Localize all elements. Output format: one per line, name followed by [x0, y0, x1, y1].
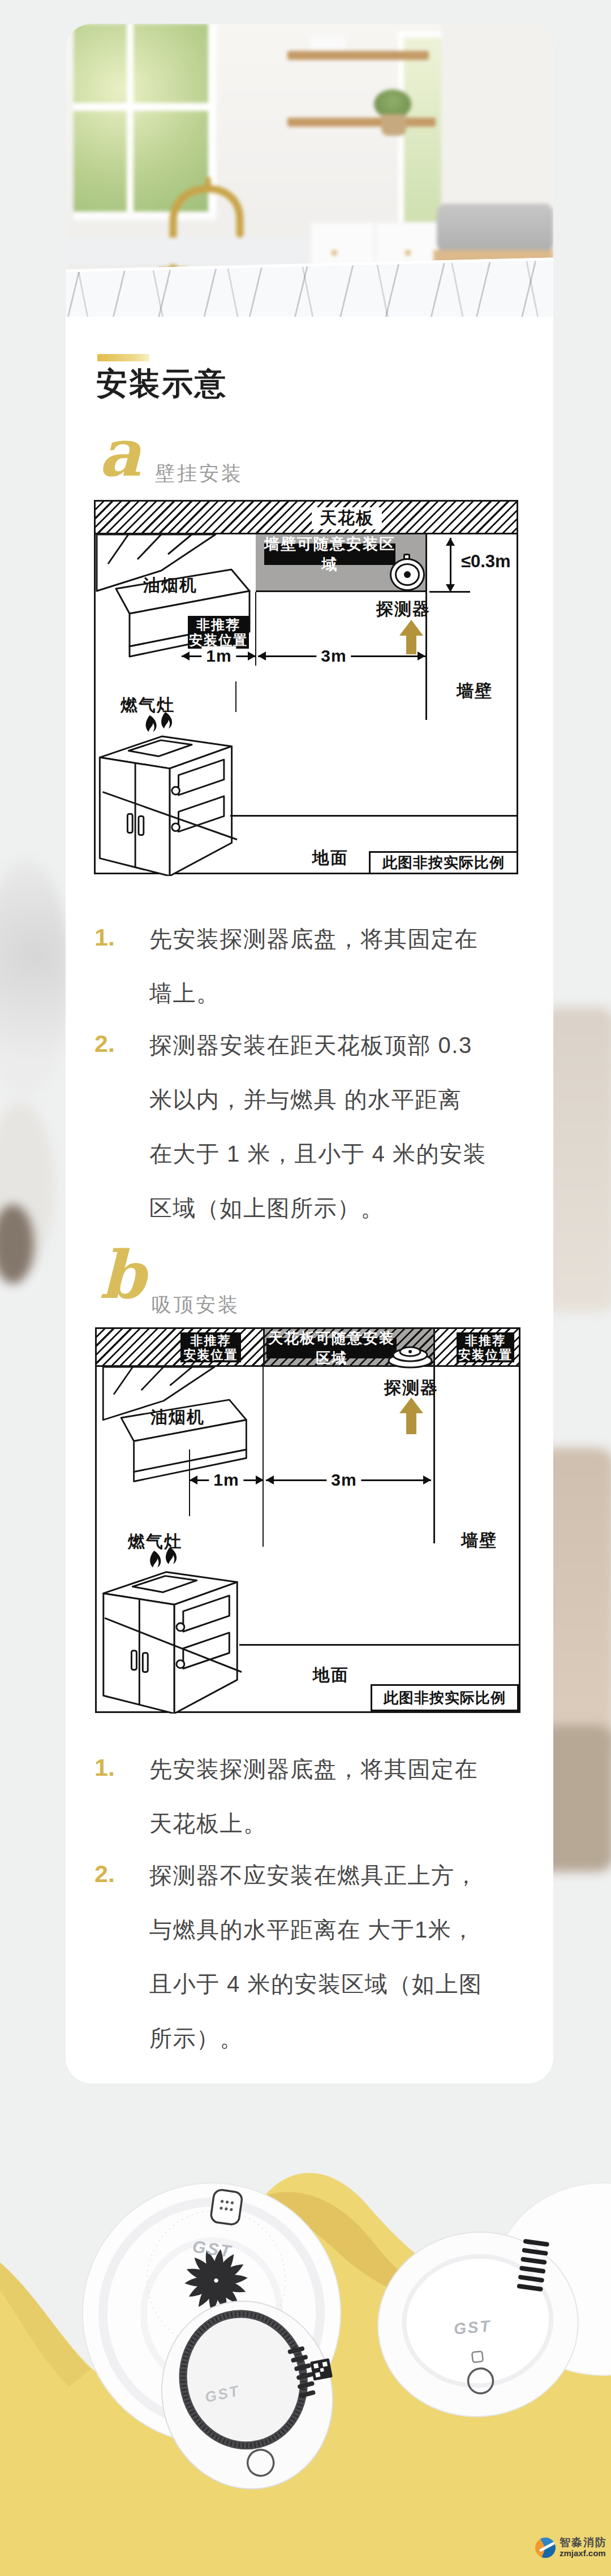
instruction-line: 探测器安装在距天花板顶部 0.3	[149, 1030, 472, 1061]
kitchen-photo	[66, 24, 553, 317]
gold-up-arrow-icon	[406, 635, 416, 654]
instruction-line: 天花板上。	[149, 1808, 267, 1839]
step-number: 2.	[94, 1030, 115, 1058]
shelf-lower	[287, 118, 436, 127]
instruction-line: 先安装探测器底盘，将其固定在	[149, 1754, 478, 1785]
ceiling-hatch	[96, 502, 517, 534]
dim-3m-label: 3m	[326, 1470, 361, 1490]
watermark-name: 智淼消防	[560, 2537, 607, 2548]
wall-line	[433, 1367, 435, 1543]
floor-line	[239, 1644, 519, 1646]
wall-label: 墙壁	[461, 1529, 497, 1552]
step-b-label: 吸顶安装	[152, 1292, 240, 1318]
wall-zone-label: 墙壁可随意安装区域	[264, 543, 395, 565]
ceiling-zone-label: 天花板可随意安装区域	[266, 1338, 397, 1358]
stove-axis-line	[235, 681, 236, 712]
instruction-line: 与燃具的水平距离在 大于1米，	[149, 1914, 475, 1945]
dim-1m-label: 1m	[209, 1470, 243, 1490]
scale-note-box: 此图非按实际比例	[371, 1684, 519, 1711]
step-a-label: 壁挂安装	[155, 460, 243, 487]
hood-label: 油烟机	[143, 574, 197, 597]
step-number: 1.	[94, 924, 115, 951]
floor-label: 地面	[313, 1664, 349, 1687]
bench-cushion	[437, 204, 553, 252]
detector-label: 探测器	[384, 1377, 438, 1400]
bg-pot-blob	[0, 860, 71, 1097]
instruction-line: 米以内，并与燃具 的水平距离	[149, 1084, 462, 1115]
step-number: 2.	[94, 1860, 115, 1888]
instruction-line: 先安装探测器底盘，将其固定在	[149, 924, 478, 955]
watermark-logo-icon	[535, 2538, 556, 2558]
floor-line	[230, 815, 518, 817]
step-number: 1.	[94, 1754, 115, 1781]
brand-logo: GST	[453, 2317, 492, 2338]
detector-icon	[390, 558, 425, 591]
sink-counter	[66, 238, 310, 265]
qr-code	[310, 2358, 333, 2381]
gold-dash	[97, 354, 149, 361]
ceiling-label: 天花板	[312, 507, 382, 529]
dim-3m-label: 3m	[316, 646, 351, 666]
instruction-line: 探测器不应安装在燃具正上方，	[149, 1860, 478, 1891]
diagram-wall-mount: 天花板 墙壁可随意安装区域 ≤0.3m 探测器	[94, 500, 518, 874]
distance-tick	[429, 591, 470, 593]
instruction-line: 所示）。	[149, 2023, 243, 2054]
detector-label: 探测器	[376, 598, 431, 621]
zone-divider-line	[263, 1367, 264, 1547]
content-card: 安装示意 a 壁挂安装 天花板 墙壁可随意安装区域 ≤0.3m 探测器	[66, 24, 553, 2083]
product-detail-page: 安装示意 a 壁挂安装 天花板 墙壁可随意安装区域 ≤0.3m 探测器	[0, 0, 611, 2576]
not-recommended-tag: 非推荐 安装位置	[180, 1332, 241, 1362]
floor-label: 地面	[312, 847, 348, 870]
hood-label: 油烟机	[150, 1406, 205, 1429]
detector-product-photos	[0, 2166, 611, 2576]
wall-line	[425, 534, 427, 720]
diagram-ceiling-mount: 非推荐 安装位置 天花板可随意安装区域 非推荐 安装位置 探测器	[95, 1327, 520, 1713]
dim-1m-label: 1m	[201, 646, 236, 666]
instruction-line: 区域（如上图所示）。	[149, 1193, 384, 1224]
stove-cabinet-drawing	[96, 710, 236, 876]
wall-right	[441, 24, 553, 210]
shelf-upper	[287, 51, 429, 60]
stove-cabinet-drawing	[97, 1545, 244, 1714]
scale-note-box: 此图非按实际比例	[369, 851, 518, 874]
distance-label: ≤0.3m	[461, 551, 511, 572]
range-hood-drawing	[96, 534, 265, 670]
instruction-line: 且小于 4 米的安装区域（如上图	[149, 1969, 482, 2000]
section-title: 安装示意	[96, 363, 227, 405]
detector-icon	[386, 1338, 434, 1369]
not-recommended-tag: 非推荐 安装位置	[188, 616, 249, 649]
watermark: 智淼消防 zmjaxf.com	[535, 2537, 607, 2558]
wall-label: 墙壁	[457, 680, 493, 703]
instruction-line: 墙上。	[149, 978, 220, 1009]
distance-arrow	[450, 538, 451, 592]
step-a-letter: a	[98, 420, 141, 485]
gold-up-arrow-icon	[406, 1413, 416, 1434]
detector-notch-icon	[403, 554, 410, 560]
watermark-site: zmjaxf.com	[560, 2548, 607, 2558]
not-recommended-tag: 非推荐 安装位置	[457, 1332, 514, 1362]
instruction-line: 在大于 1 米，且小于 4 米的安装	[149, 1138, 487, 1170]
step-b-letter: b	[100, 1242, 145, 1308]
